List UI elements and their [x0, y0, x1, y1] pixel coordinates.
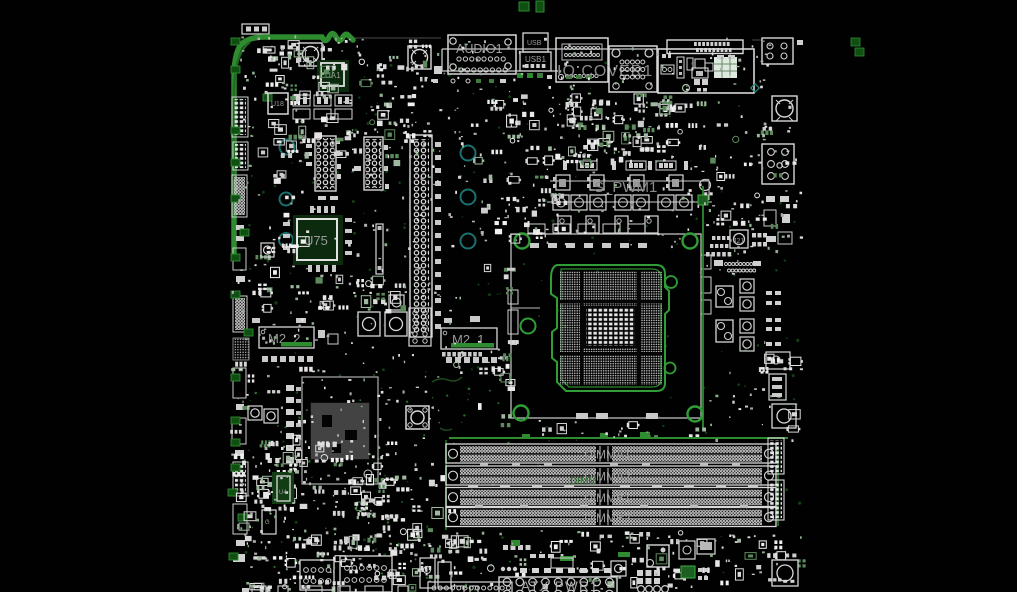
svg-text:J21: J21 — [733, 238, 744, 245]
svg-text:DIMM: DIMM — [570, 476, 597, 487]
svg-text:S_PWM1: S_PWM1 — [594, 179, 657, 196]
svg-text:DIMMB2: DIMMB2 — [584, 511, 631, 525]
svg-text:U75: U75 — [304, 233, 328, 248]
svg-text:USB: USB — [527, 40, 542, 47]
svg-text:DIMMB1: DIMMB1 — [584, 491, 631, 505]
svg-text:USB1: USB1 — [525, 55, 546, 64]
svg-text:G: G — [265, 520, 270, 526]
svg-text:DIMMA1: DIMMA1 — [584, 448, 631, 462]
svg-text:U18: U18 — [271, 101, 284, 108]
